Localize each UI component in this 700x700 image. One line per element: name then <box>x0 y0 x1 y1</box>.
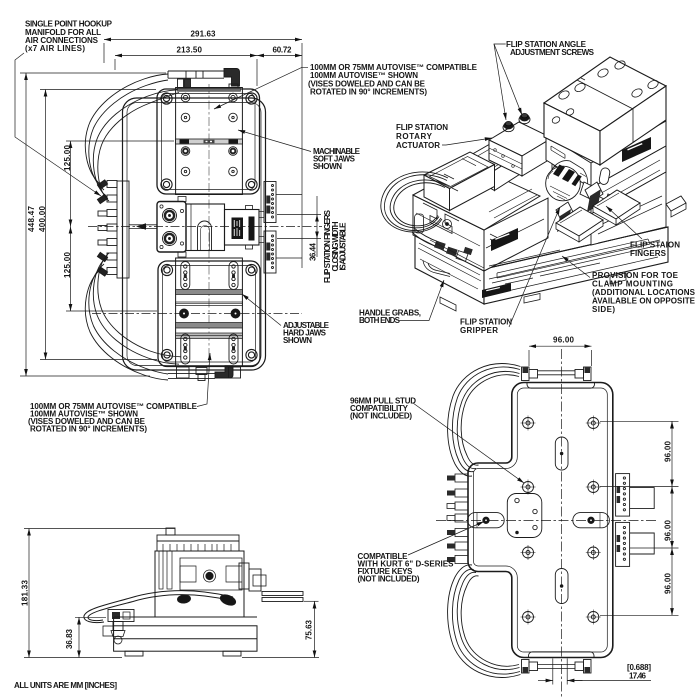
svg-text:SIDE): SIDE) <box>592 305 615 314</box>
svg-text:ALL UNITS ARE MM [INCHES]: ALL UNITS ARE MM [INCHES] <box>14 681 117 690</box>
svg-text:ACTUATOR: ACTUATOR <box>396 141 440 150</box>
svg-text:96.00: 96.00 <box>664 519 673 541</box>
svg-text:(x7 AIR LINES): (x7 AIR LINES) <box>25 44 85 53</box>
svg-text:ROTATED IN 90° INCREMENTS): ROTATED IN 90° INCREMENTS) <box>30 425 147 434</box>
svg-text:181.33: 181.33 <box>21 579 30 606</box>
svg-text:448.47: 448.47 <box>27 205 36 232</box>
svg-text:36.83: 36.83 <box>65 628 74 649</box>
svg-text:(NOT INCLUDED): (NOT INCLUDED) <box>358 575 420 584</box>
svg-text:GRIPPER: GRIPPER <box>460 326 498 335</box>
svg-text:75.63: 75.63 <box>305 619 314 640</box>
svg-text:291.63: 291.63 <box>191 30 217 39</box>
svg-text:ROTATED IN 90° INCREMENTS): ROTATED IN 90° INCREMENTS) <box>310 88 427 97</box>
svg-text:213.50: 213.50 <box>177 46 203 55</box>
svg-text:60.72: 60.72 <box>273 46 293 55</box>
svg-text:96.00: 96.00 <box>664 572 673 594</box>
svg-text:FLIP STATION: FLIP STATION <box>396 123 448 132</box>
svg-text:400.00: 400.00 <box>38 205 47 232</box>
svg-text:36.44: 36.44 <box>309 242 318 261</box>
svg-text:IS ADJUSTABLE: IS ADJUSTABLE <box>339 222 348 271</box>
svg-text:FINGERS: FINGERS <box>630 249 667 258</box>
svg-text:ADJUSTMENT SCREWS: ADJUSTMENT SCREWS <box>510 48 595 57</box>
svg-text:96.00: 96.00 <box>664 440 673 462</box>
svg-text:BOTH ENDS: BOTH ENDS <box>359 316 401 325</box>
svg-text:SHOWN: SHOWN <box>283 336 312 345</box>
svg-text:(NOT INCLUDED): (NOT INCLUDED) <box>350 412 412 421</box>
svg-text:96.00: 96.00 <box>553 336 575 345</box>
svg-text:SHOWN: SHOWN <box>313 162 342 171</box>
svg-text:17.46: 17.46 <box>629 672 647 681</box>
svg-text:ROTARY: ROTARY <box>396 132 433 141</box>
